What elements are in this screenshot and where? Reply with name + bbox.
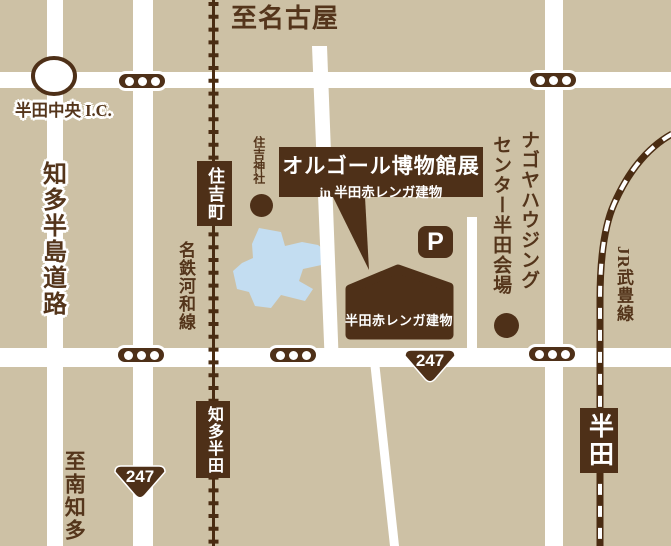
access-map: 至名古屋 至南知多 半田中央 I.C. 知多半島道路 名鉄河和線 JR武豊線 住…	[0, 0, 671, 546]
jr-line-label: JR武豊線	[614, 246, 632, 323]
route-247-badge-east: 247	[403, 348, 457, 385]
route-badge-number: 247	[403, 351, 457, 371]
traffic-light-icon	[526, 344, 578, 364]
housing-center-label-line2: センター半田会場	[490, 135, 510, 295]
road-stub-parking	[467, 217, 477, 367]
shrine-dot	[250, 194, 273, 217]
venue-callout: オルゴール博物館展 in 半田赤レンガ建物	[279, 147, 483, 197]
traffic-light-icon	[115, 345, 167, 365]
traffic-light-icon	[267, 345, 319, 365]
expressway-label: 知多半島道路	[38, 161, 63, 317]
interchange-label: 半田中央 I.C.	[15, 102, 112, 119]
housing-center-dot	[494, 313, 519, 338]
to-nagoya-label: 至名古屋	[231, 5, 339, 33]
parking-icon: P	[418, 226, 453, 258]
traffic-light-icon	[116, 71, 168, 91]
station-sumiyoshicho: 住吉町	[197, 161, 232, 226]
station-handa-label: 半田	[587, 413, 612, 469]
venue-callout-subtitle: in 半田赤レンガ建物	[279, 181, 483, 201]
shrine-label: 住吉神社	[252, 136, 265, 184]
meitetsu-line-label: 名鉄河和線	[176, 241, 194, 331]
housing-center-label-line1: ナゴヤハウジング	[518, 130, 538, 290]
traffic-light-icon	[527, 70, 579, 90]
station-chita-handa-label: 知多半田	[205, 406, 221, 474]
interchange-circle	[33, 58, 75, 94]
station-chita-handa: 知多半田	[196, 401, 230, 478]
station-handa: 半田	[580, 408, 618, 473]
station-sumiyoshicho-label: 住吉町	[206, 167, 223, 221]
to-minami-chita-label: 至南知多	[63, 450, 85, 542]
venue-callout-title: オルゴール博物館展	[279, 150, 483, 180]
building-label: 半田赤レンガ建物	[343, 310, 455, 329]
route-badge-number: 247	[113, 467, 167, 487]
route-247-badge-west: 247	[113, 464, 167, 501]
